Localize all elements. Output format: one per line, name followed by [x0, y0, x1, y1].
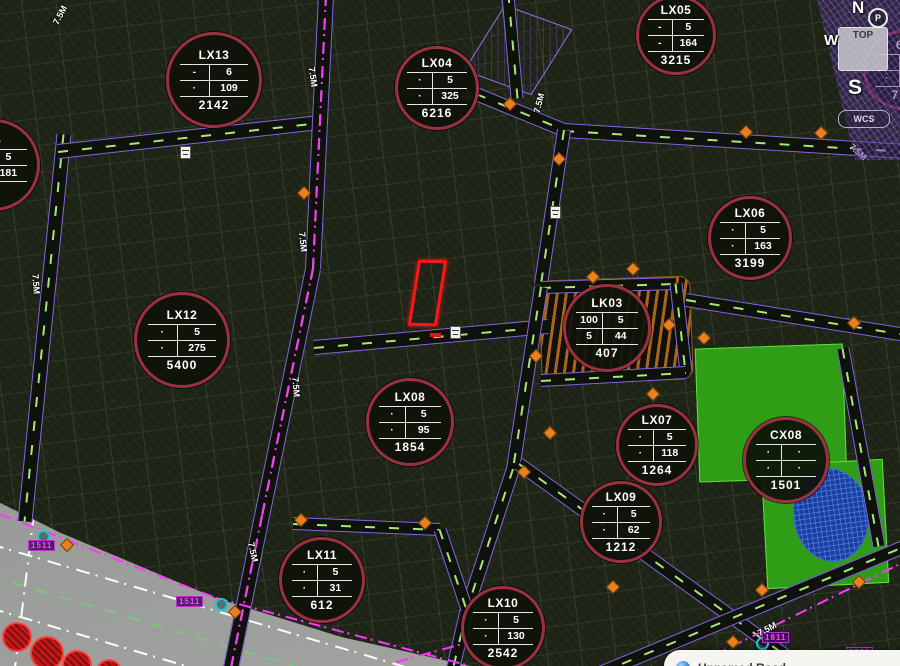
balloon-cell: · [379, 423, 406, 438]
parcel-balloon-LK03[interactable]: LK031005544407 [563, 284, 651, 372]
info-toast: Unnamed Road [664, 650, 900, 666]
parcel-balloon-LX13[interactable]: LX13-6·1092142 [166, 32, 262, 128]
balloon-cell: · [756, 445, 783, 461]
road-name-plate [180, 146, 191, 159]
balloon-cell: · [180, 81, 210, 96]
parcel-balloon-15[interactable]: 1551811 [0, 119, 40, 211]
road-centerline [541, 371, 686, 381]
balloon-cell: 5 [499, 613, 532, 629]
balloon-title: CX08 [770, 429, 802, 442]
dimension-label: 7.5M [297, 232, 309, 253]
balloon-total: 2142 [199, 99, 230, 112]
balloon-cell: 109 [210, 81, 248, 96]
balloon-cell: · [407, 73, 433, 89]
balloon-table: ···· [756, 444, 817, 477]
balloon-cell: 5 [406, 407, 441, 423]
road-segment[interactable] [434, 527, 473, 611]
parcel-balloon-LX08[interactable]: LX08·5·951854 [366, 378, 454, 466]
balloon-cell: 163 [746, 239, 779, 254]
balloon-cell: 118 [654, 446, 686, 461]
balloon-total: 6216 [422, 107, 453, 120]
balloon-cell: 5 [673, 20, 704, 36]
dimension-label: 7.5M [532, 92, 547, 114]
balloon-table: ·5·163 [720, 222, 779, 255]
boundary-line-magenta[interactable] [261, 268, 314, 515]
selected-parcel-highlight[interactable] [408, 260, 447, 326]
balloon-cell: 62 [618, 523, 650, 538]
balloon-cell: · [407, 89, 433, 104]
parcel-balloon-LX04[interactable]: LX04·5·3256216 [395, 46, 479, 130]
balloon-table: ·5·275 [148, 324, 216, 357]
balloon-table: 1005544 [576, 312, 638, 345]
red-hatch-marker [30, 636, 64, 666]
parcel-balloon-LX11[interactable]: LX11·5·31612 [279, 537, 365, 623]
junction-marker-icon [646, 387, 660, 401]
balloon-title: LX07 [642, 414, 673, 427]
balloon-cell: 44 [603, 329, 638, 344]
globe-icon [676, 661, 690, 666]
parcel-balloon-LX12[interactable]: LX12·5·2755400 [134, 292, 230, 388]
junction-marker-icon [626, 262, 640, 276]
balloon-title: LX09 [606, 491, 637, 504]
balloon-total: 407 [595, 347, 618, 360]
balloon-cell: 5 [576, 329, 603, 344]
station-tag: 1511 [176, 596, 203, 607]
balloon-cell: 5 [618, 507, 650, 523]
wcs-selector[interactable]: WCS [838, 110, 890, 128]
balloon-cell: 5 [0, 150, 27, 166]
balloon-cell: · [720, 223, 746, 239]
balloon-title: LX05 [661, 4, 692, 17]
balloon-total: 1501 [771, 479, 802, 492]
balloon-table: ·5·31 [292, 564, 353, 597]
balloon-total: 3199 [735, 257, 766, 270]
balloon-cell: 164 [673, 36, 704, 51]
balloon-cell: · [592, 507, 617, 523]
road-centerline [476, 93, 565, 131]
balloon-total: 1854 [395, 441, 426, 454]
parcel-balloon-LX09[interactable]: LX09·5·621212 [580, 481, 662, 563]
balloon-cell: - [648, 36, 673, 51]
balloon-cell: · [379, 407, 406, 423]
pan-button[interactable]: P [868, 8, 888, 28]
balloon-cell: · [628, 430, 653, 446]
balloon-cell: · [473, 613, 499, 629]
viewcube-north[interactable]: N [852, 0, 864, 18]
balloon-cell: 5 [603, 313, 638, 329]
balloon-title: LX11 [307, 549, 337, 562]
road-centerline [439, 529, 468, 610]
road-centerline [518, 463, 793, 662]
viewcube-top-face[interactable]: TOP [838, 27, 888, 71]
balloon-table: ·5·130 [473, 612, 532, 645]
balloon-cell: · [473, 629, 499, 644]
viewcube-west[interactable]: W [824, 32, 838, 49]
road-name-plate [550, 206, 561, 219]
balloon-title: LX10 [488, 597, 519, 610]
balloon-title: LX13 [199, 49, 230, 62]
balloon-cell: 5 [746, 223, 779, 239]
junction-marker-icon [697, 331, 711, 345]
road-segment[interactable] [293, 517, 441, 536]
balloon-cell: - [648, 20, 673, 36]
balloon-total: 1212 [606, 541, 637, 554]
balloon-total: 1264 [642, 464, 673, 477]
balloon-total: 3215 [661, 54, 692, 67]
balloon-cell: · [592, 523, 617, 538]
dimension-label: 7.5M [51, 4, 69, 26]
dimension-label: 7.5M [30, 274, 41, 295]
red-dash-marker [430, 333, 441, 337]
red-hatch-marker [2, 622, 32, 652]
balloon-title: LX04 [422, 57, 453, 70]
station-tag: 1511 [28, 540, 55, 551]
road-centerline [686, 299, 900, 336]
road-segment[interactable] [685, 293, 900, 342]
balloon-title: LX12 [167, 309, 198, 322]
viewcube-south[interactable]: S [848, 76, 862, 100]
balloon-title: LX06 [735, 207, 766, 220]
balloon-table: -6·109 [180, 64, 248, 97]
balloon-total: 2542 [488, 647, 519, 660]
parcel-balloon-LX05[interactable]: LX05-5-1643215 [636, 0, 716, 75]
balloon-cell: · [148, 341, 178, 356]
junction-marker-icon [606, 580, 620, 594]
balloon-cell: · [148, 325, 178, 341]
balloon-cell: · [720, 239, 746, 254]
road-name-plate [450, 326, 461, 339]
balloon-table: ·5·62 [592, 506, 650, 539]
balloon-cell: · [292, 565, 319, 581]
junction-marker-icon [543, 426, 557, 440]
balloon-cell: - [180, 65, 210, 81]
viewcube[interactable]: N P TOP W S WCS [788, 0, 900, 160]
balloon-table: ·5·95 [379, 406, 441, 439]
balloon-cell: · [292, 581, 319, 596]
dimension-label: 7.5M [290, 377, 301, 398]
node-marker-icon [215, 598, 228, 611]
balloon-cell: 95 [406, 423, 441, 438]
toast-text: Unnamed Road [698, 661, 786, 666]
parcel-balloon-CX08[interactable]: CX08····1501 [743, 417, 829, 503]
balloon-cell: 130 [499, 629, 532, 644]
parcel-balloon-LX10[interactable]: LX10·5·1302542 [461, 586, 545, 666]
balloon-cell: 181 [0, 166, 27, 181]
balloon-cell: 325 [433, 89, 466, 104]
balloon-cell: 6 [210, 65, 248, 81]
balloon-cell: 5 [178, 325, 216, 341]
balloon-table: ·5·118 [628, 429, 686, 462]
balloon-cell: 5 [433, 73, 466, 89]
balloon-cell: · [756, 461, 783, 476]
balloon-table: -5-164 [648, 19, 704, 52]
cad-canvas[interactable]: N P TOP W S WCS Unnamed Road LX13-6·1092… [0, 0, 900, 666]
balloon-table: 5181 [0, 149, 27, 182]
balloon-cell: 100 [576, 313, 603, 329]
parcel-balloon-LX06[interactable]: LX06·5·1633199 [708, 196, 792, 280]
balloon-cell: 5 [654, 430, 686, 446]
balloon-title: 15 [0, 134, 1, 147]
road-centerline [512, 287, 542, 469]
balloon-cell: · [782, 461, 816, 476]
balloon-total: 5400 [167, 359, 198, 372]
balloon-title: LX08 [395, 391, 426, 404]
balloon-cell: · [628, 446, 653, 461]
balloon-cell: 31 [318, 581, 352, 596]
balloon-total: 612 [310, 599, 333, 612]
balloon-cell: 275 [178, 341, 216, 356]
balloon-cell: · [782, 445, 816, 461]
balloon-cell: 5 [318, 565, 352, 581]
balloon-title: LK03 [591, 297, 622, 310]
parcel-balloon-LX07[interactable]: LX07·5·1181264 [616, 404, 698, 486]
balloon-table: ·5·325 [407, 72, 466, 105]
